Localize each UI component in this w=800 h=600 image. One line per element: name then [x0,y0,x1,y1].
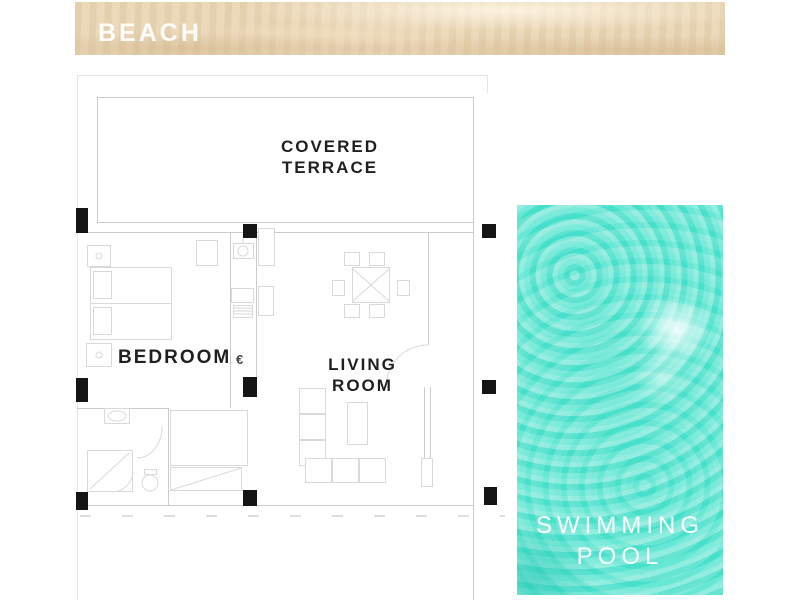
column-pillar [482,380,496,394]
room-label-line: TERRACE [260,158,400,179]
room-label-line: LIVING [305,355,420,376]
wall-entry-nook [428,232,429,345]
column-pillar [243,224,257,238]
column-pillar [76,208,88,233]
sofa-section [332,458,359,483]
room-label-bedroom: BEDROOM [118,346,226,369]
nightstand [87,245,111,267]
column-pillar [243,490,257,506]
room-label-covered-terrace: COVERED TERRACE [260,137,400,178]
column-pillar [243,377,257,397]
building-wall-right [473,97,474,600]
bed-pillow [93,307,112,335]
wall-kitchen-living [256,232,257,378]
building-wall-bottom [77,505,473,506]
pool-label-line: SWIMMING [517,510,723,541]
sliding-door-rail-right [430,387,431,458]
sofa-section [305,458,332,483]
bedroom-desk [196,240,218,266]
beach-banner: BEACH [75,2,725,55]
swimming-pool: SWIMMING POOL [517,205,723,595]
wardrobe-lower-shelf [170,467,242,491]
wardrobe [170,410,248,466]
room-label-line: COVERED [260,137,400,158]
dining-chair [344,252,360,266]
electric-panel-symbol: € [236,352,243,367]
toilet-tank [144,469,157,475]
dining-chair [344,304,360,318]
sliding-door-handle [421,458,433,487]
room-label-line: ROOM [305,376,420,397]
pool-label-line: POOL [517,541,723,572]
kitchen-stove [233,305,253,318]
sliding-door-rail-left [424,387,425,458]
bathroom-sink [104,408,130,424]
column-pillar [482,224,496,238]
wall-bedroom-kitchen [230,232,231,408]
kitchen-fridge [231,288,254,303]
dining-chair [369,304,385,318]
sofa-section [359,458,386,483]
dining-chair [332,280,345,296]
column-pillar [76,378,88,402]
dining-chair [369,252,385,266]
kitchen-sink [233,243,254,259]
column-pillar [484,487,497,505]
room-label-line: BEDROOM [118,346,226,369]
kitchen-cabinet [258,286,274,316]
bed-pillow [93,271,112,299]
pool-label: SWIMMING POOL [517,510,723,572]
toilet-bowl [142,475,158,491]
screenshot-root: BEACH [0,0,800,600]
roof-overhang-dashed-line [80,515,505,517]
nightstand [86,343,112,367]
building-wall-top [77,232,473,233]
shower [87,450,133,492]
terrace-wall-left [97,97,98,222]
coffee-table [347,402,368,445]
plot-boundary-right-stub [487,75,488,93]
dining-chair [397,280,410,296]
plot-boundary-left [77,75,78,600]
terrace-wall-bottom [97,222,473,223]
kitchen-cabinet [258,228,275,266]
room-label-living-room: LIVING ROOM [305,355,420,396]
sofa-section [299,414,326,440]
beach-label: BEACH [98,19,202,48]
plot-boundary-top [77,75,487,76]
terrace-wall-top [97,97,473,98]
column-pillar [76,492,88,510]
dining-table [352,267,390,303]
bed-mattress-divider [90,303,172,304]
bathroom-door-arc [137,427,162,458]
wall-bathroom-right [168,408,169,505]
